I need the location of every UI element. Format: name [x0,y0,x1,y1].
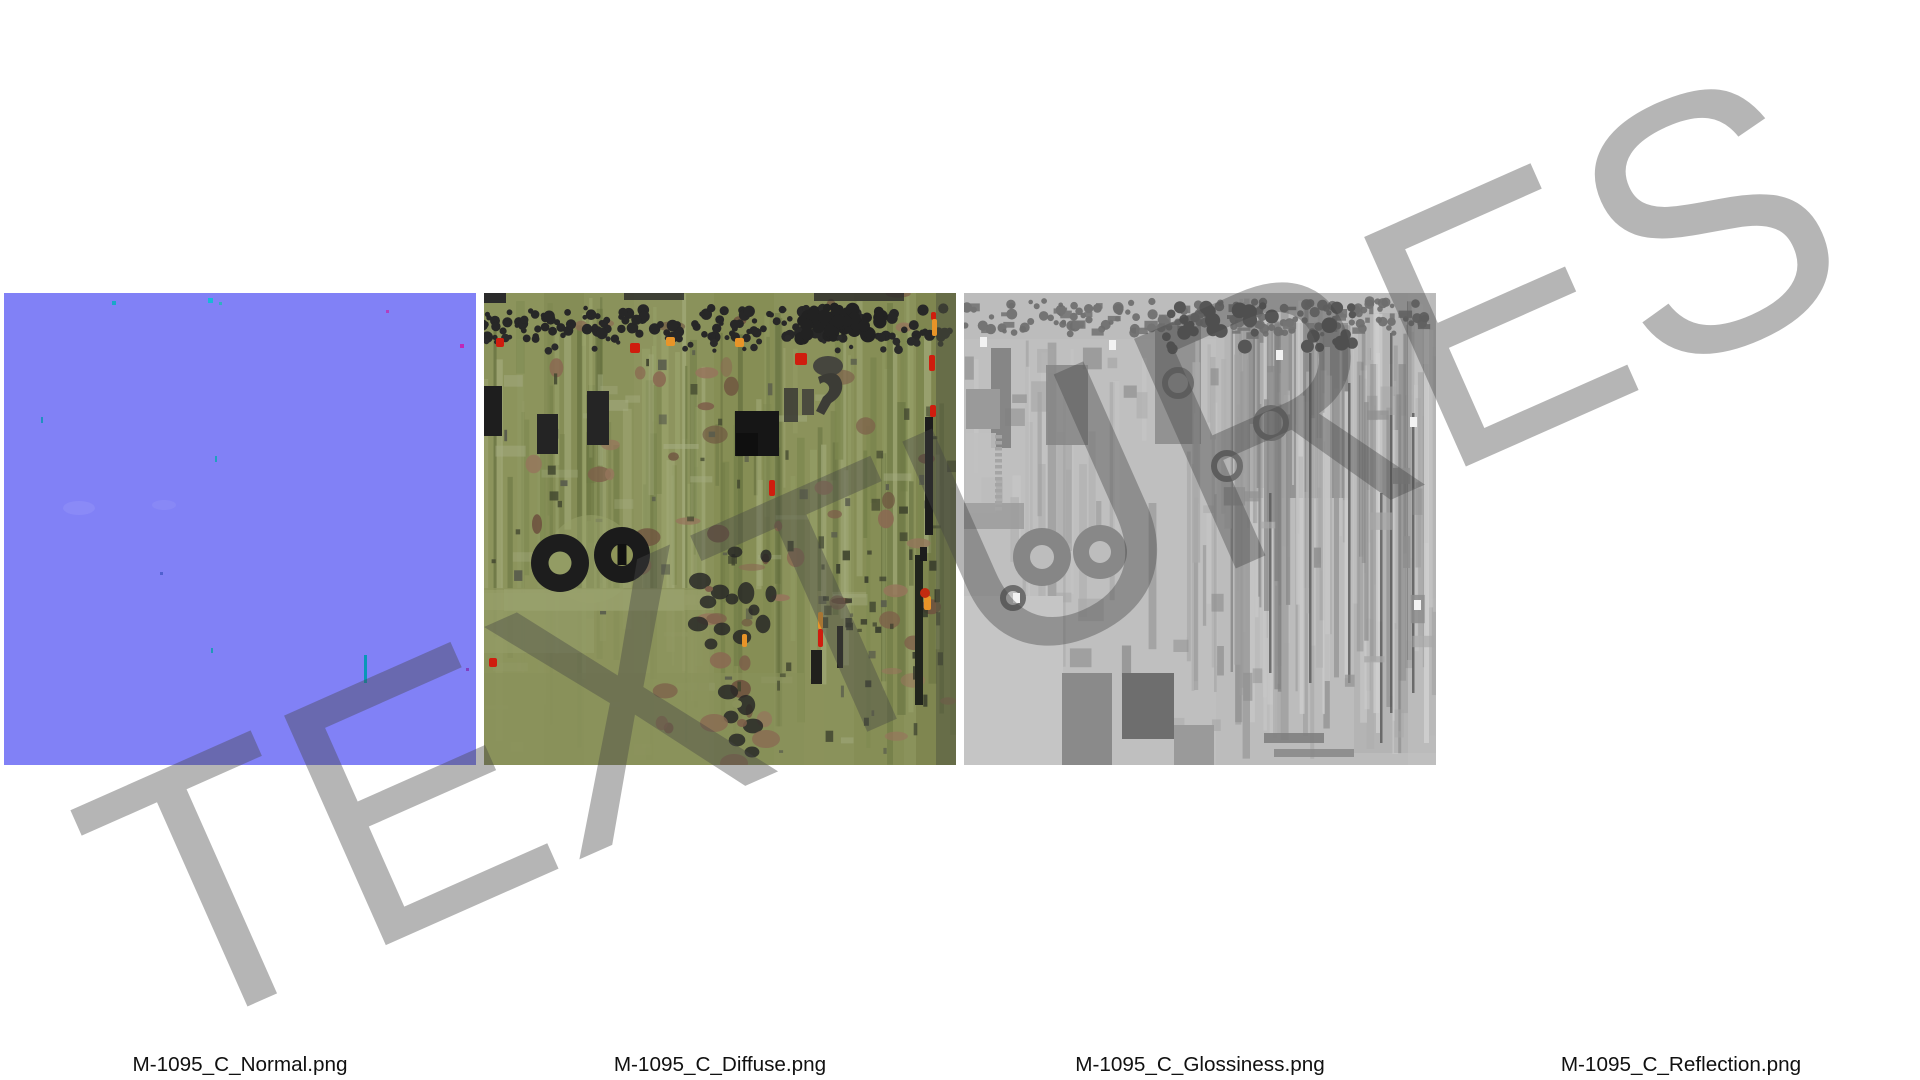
svg-text:TEXTURES: TEXTURES [31,0,1896,1080]
